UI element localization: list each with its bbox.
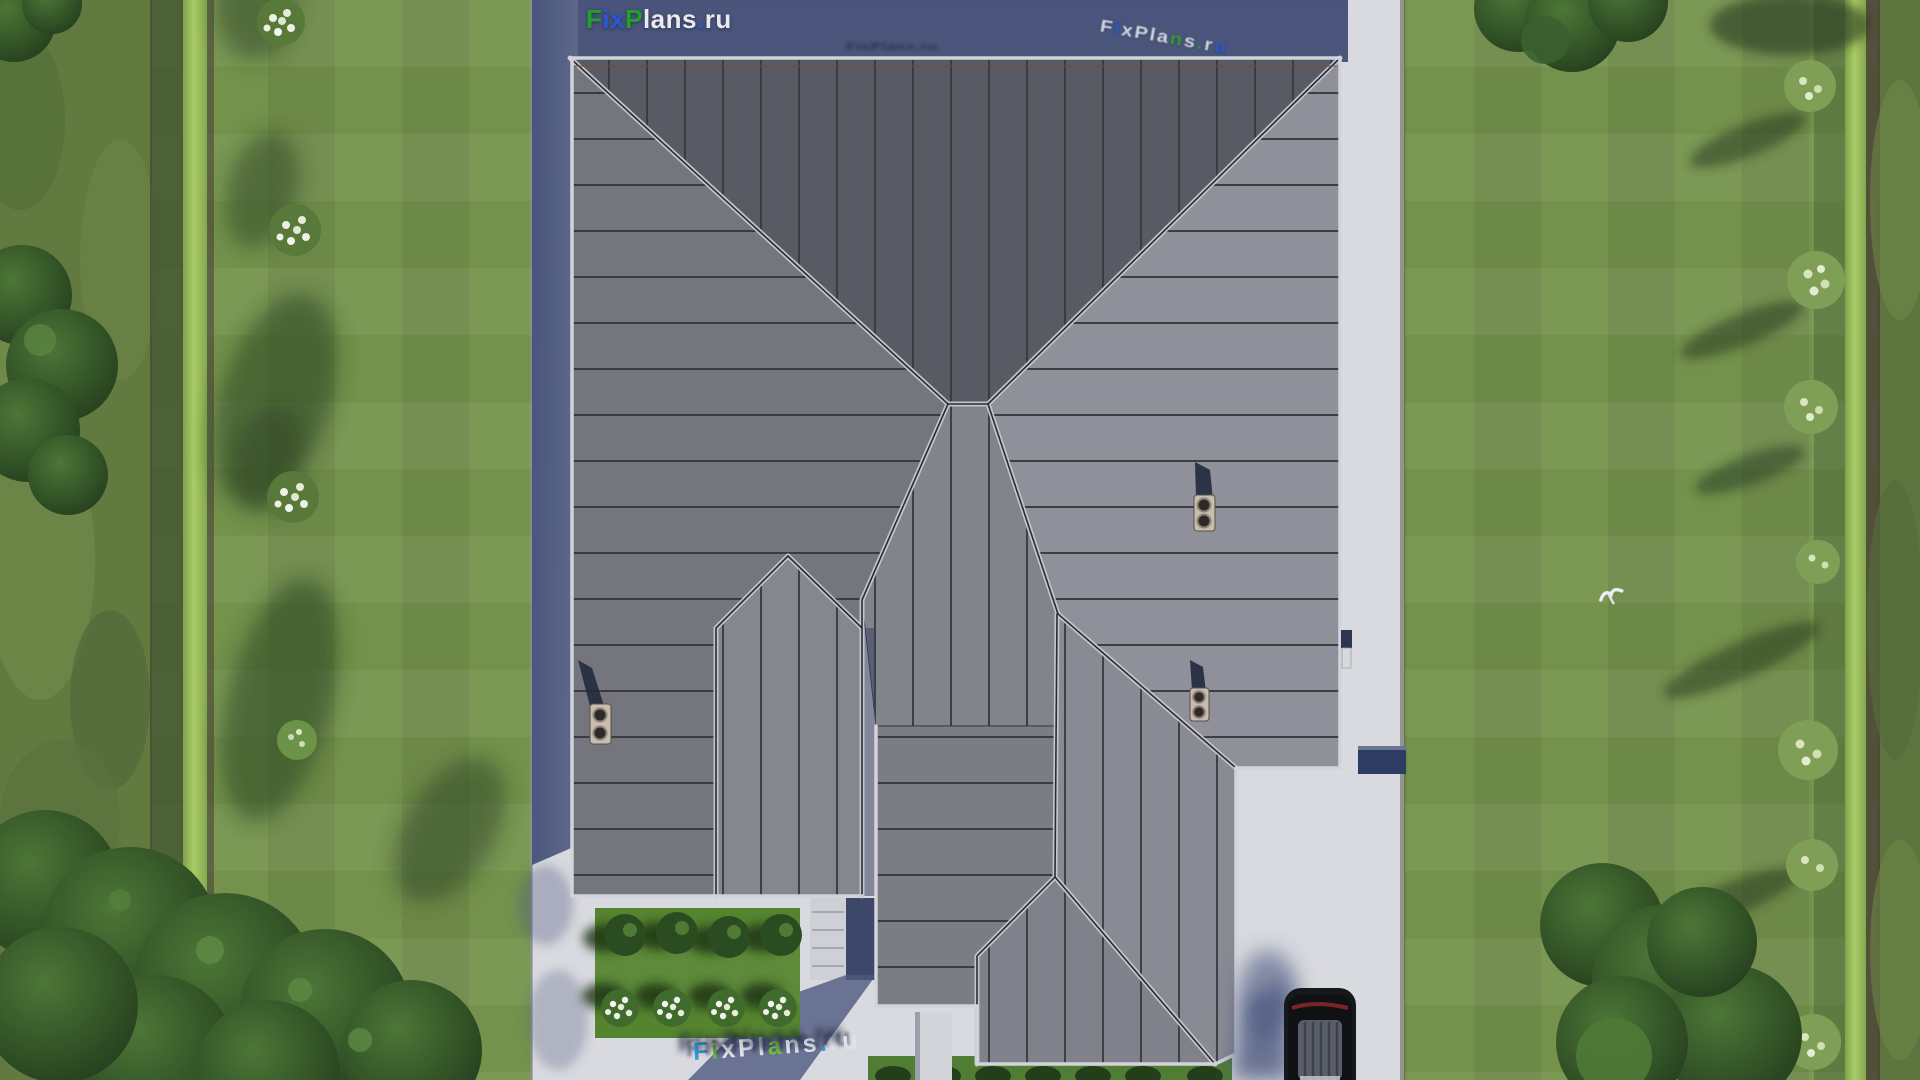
porch-pillar xyxy=(915,1012,952,1080)
scene-canvas xyxy=(0,0,1920,1080)
garden-bed xyxy=(582,908,802,1038)
black-car xyxy=(1284,988,1356,1080)
watermark-top-center: FixPlans.ru xyxy=(846,40,938,53)
fixplans-logo: FixPlans.ru xyxy=(586,4,732,35)
porch-pillar-shade xyxy=(915,1012,920,1080)
pad-right-edge xyxy=(1400,0,1405,1080)
pad-step xyxy=(1358,746,1406,774)
downspout xyxy=(1341,630,1352,668)
right-shrub-strip xyxy=(1864,0,1920,1080)
right-hedge-shade xyxy=(1814,0,1845,1080)
aerial-render-stage: FixPlans.ru FixPlans.ru FixPlans.ru FixP… xyxy=(0,0,1920,1080)
right-hedge xyxy=(1845,0,1866,1080)
porch-window-shade xyxy=(846,898,876,980)
